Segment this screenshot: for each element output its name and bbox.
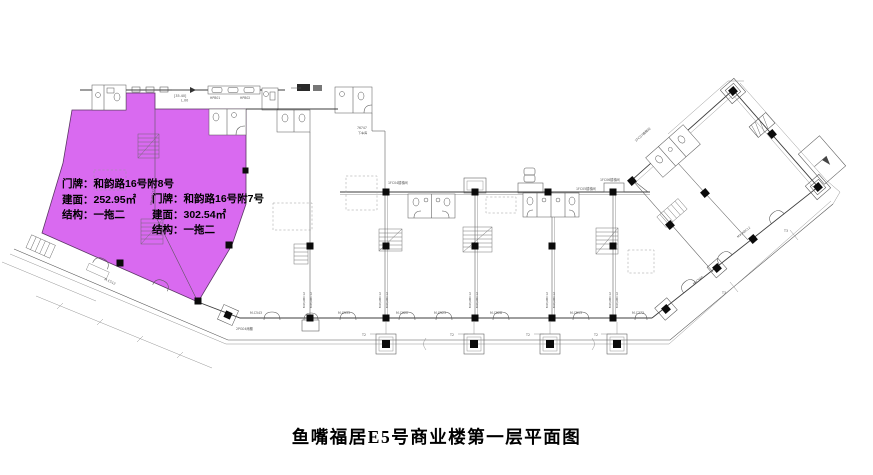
unit-8-structure-label: 结构： xyxy=(62,209,94,221)
unit-8-doorplate-value: 和韵路16号附8号 xyxy=(94,178,175,190)
unit-7-area-value: 302.54㎡ xyxy=(184,209,227,221)
wall-tag: M#/ABC12 xyxy=(309,292,313,308)
drawing-title: 鱼嘴福居E5号商业楼第一层平面图 xyxy=(0,424,873,449)
door-code: M.C020 xyxy=(396,311,408,315)
wall-tag: M#/ABC12 xyxy=(545,292,549,308)
unit-8-area-label: 建面： xyxy=(62,194,94,206)
pier-3 xyxy=(540,334,560,354)
bathroom-block-2 xyxy=(262,88,278,110)
door-code: M.C540 xyxy=(692,275,704,286)
central-section xyxy=(198,132,652,318)
wall-tag: M#/ABC12 xyxy=(615,292,619,308)
joint-t3: T3 xyxy=(721,291,726,295)
wall-tag: M#/ABC12 xyxy=(468,292,472,308)
joint-t2: T2 xyxy=(525,333,530,337)
wall-tag: M#/ABC12 xyxy=(552,292,556,308)
wc-pair-a xyxy=(408,194,455,218)
door-code: M.C373 xyxy=(632,311,644,315)
wc-pair-b xyxy=(523,193,579,217)
stair-d xyxy=(294,244,308,264)
elevation-marker: [35.40] L.00 xyxy=(172,87,196,103)
door-code: M.C533 xyxy=(338,311,350,315)
wing-balcony-box xyxy=(798,136,845,185)
ramp-note: 76747 xyxy=(357,126,367,130)
sink-counter: HPB01 HPB02 xyxy=(208,86,260,100)
joint-t2: T2 xyxy=(449,333,454,337)
stair-label: 1FC05楼梯间 xyxy=(576,186,596,191)
wall-tag: M#/ABC12 xyxy=(608,292,612,308)
pier-2 xyxy=(464,334,484,354)
wall-tag: M#/ABC12 xyxy=(378,292,382,308)
stair-label: 1FC04楼梯间 xyxy=(388,180,408,185)
door-code: M.C528 xyxy=(490,311,502,315)
toilet-room xyxy=(209,109,246,135)
stair-label: 1FC07楼梯间 xyxy=(633,126,651,143)
bathroom-block-1 xyxy=(92,85,126,110)
wall-tag: M#/ABC12 xyxy=(475,292,479,308)
level-value: L.00 xyxy=(181,99,188,103)
pier-diagonal xyxy=(217,304,238,325)
joint-t3: T3 xyxy=(783,229,788,233)
elevation-value: [35.40] xyxy=(174,94,187,98)
wing-bathroom xyxy=(646,125,701,178)
unit-7-doorplate-label: 门牌： xyxy=(152,193,184,205)
joint-t2: T2 xyxy=(593,333,598,337)
door-code: M.C523 xyxy=(434,311,446,315)
bathroom-block-4 xyxy=(335,87,372,113)
pier-4 xyxy=(607,334,627,354)
door-code: M.C543 xyxy=(250,311,262,315)
stair-c xyxy=(596,228,618,254)
stair-label: 1FC06楼梯间 xyxy=(600,177,620,182)
joint-t2: T2 xyxy=(361,333,366,337)
unit-7-structure-label: 结构： xyxy=(152,224,184,236)
wall-tag: M#/ABC12 xyxy=(736,226,751,239)
stair-a xyxy=(379,229,402,251)
wall-tag: M#/ABC12 xyxy=(302,292,306,308)
unit-8-structure-value: 一拖二 xyxy=(94,209,126,221)
door-code: M.C512 xyxy=(104,277,117,286)
fixture-code-hpb02: HPB02 xyxy=(240,96,250,100)
unit-7-doorplate-value: 和韵路16号附7号 xyxy=(184,193,265,205)
pier-1 xyxy=(376,334,396,354)
unit-7-structure-value: 一拖二 xyxy=(184,224,216,236)
unit-8-area-value: 252.95㎡ xyxy=(94,194,137,206)
floor-plan-page: { "document": { "title": "鱼嘴福居E5号商业楼第一层平… xyxy=(0,0,873,475)
unit-8-doorplate-label: 门牌： xyxy=(62,178,94,190)
canopy-note: 2PG04雨棚 xyxy=(236,326,253,331)
door-code: M.C513 xyxy=(570,311,582,315)
ramp-note-2: 下车库 xyxy=(358,130,367,135)
entry-steps xyxy=(26,235,55,258)
bathroom-block-3 xyxy=(277,110,310,132)
unit-7-area-label: 建面： xyxy=(152,209,184,221)
unit-7-annotation: 门牌：和韵路16号附7号 建面：302.54㎡ 结构：一拖二 xyxy=(152,192,264,239)
wall-tag: M#/ABC12 xyxy=(385,292,389,308)
fixture-code-hpb01: HPB01 xyxy=(210,96,220,100)
